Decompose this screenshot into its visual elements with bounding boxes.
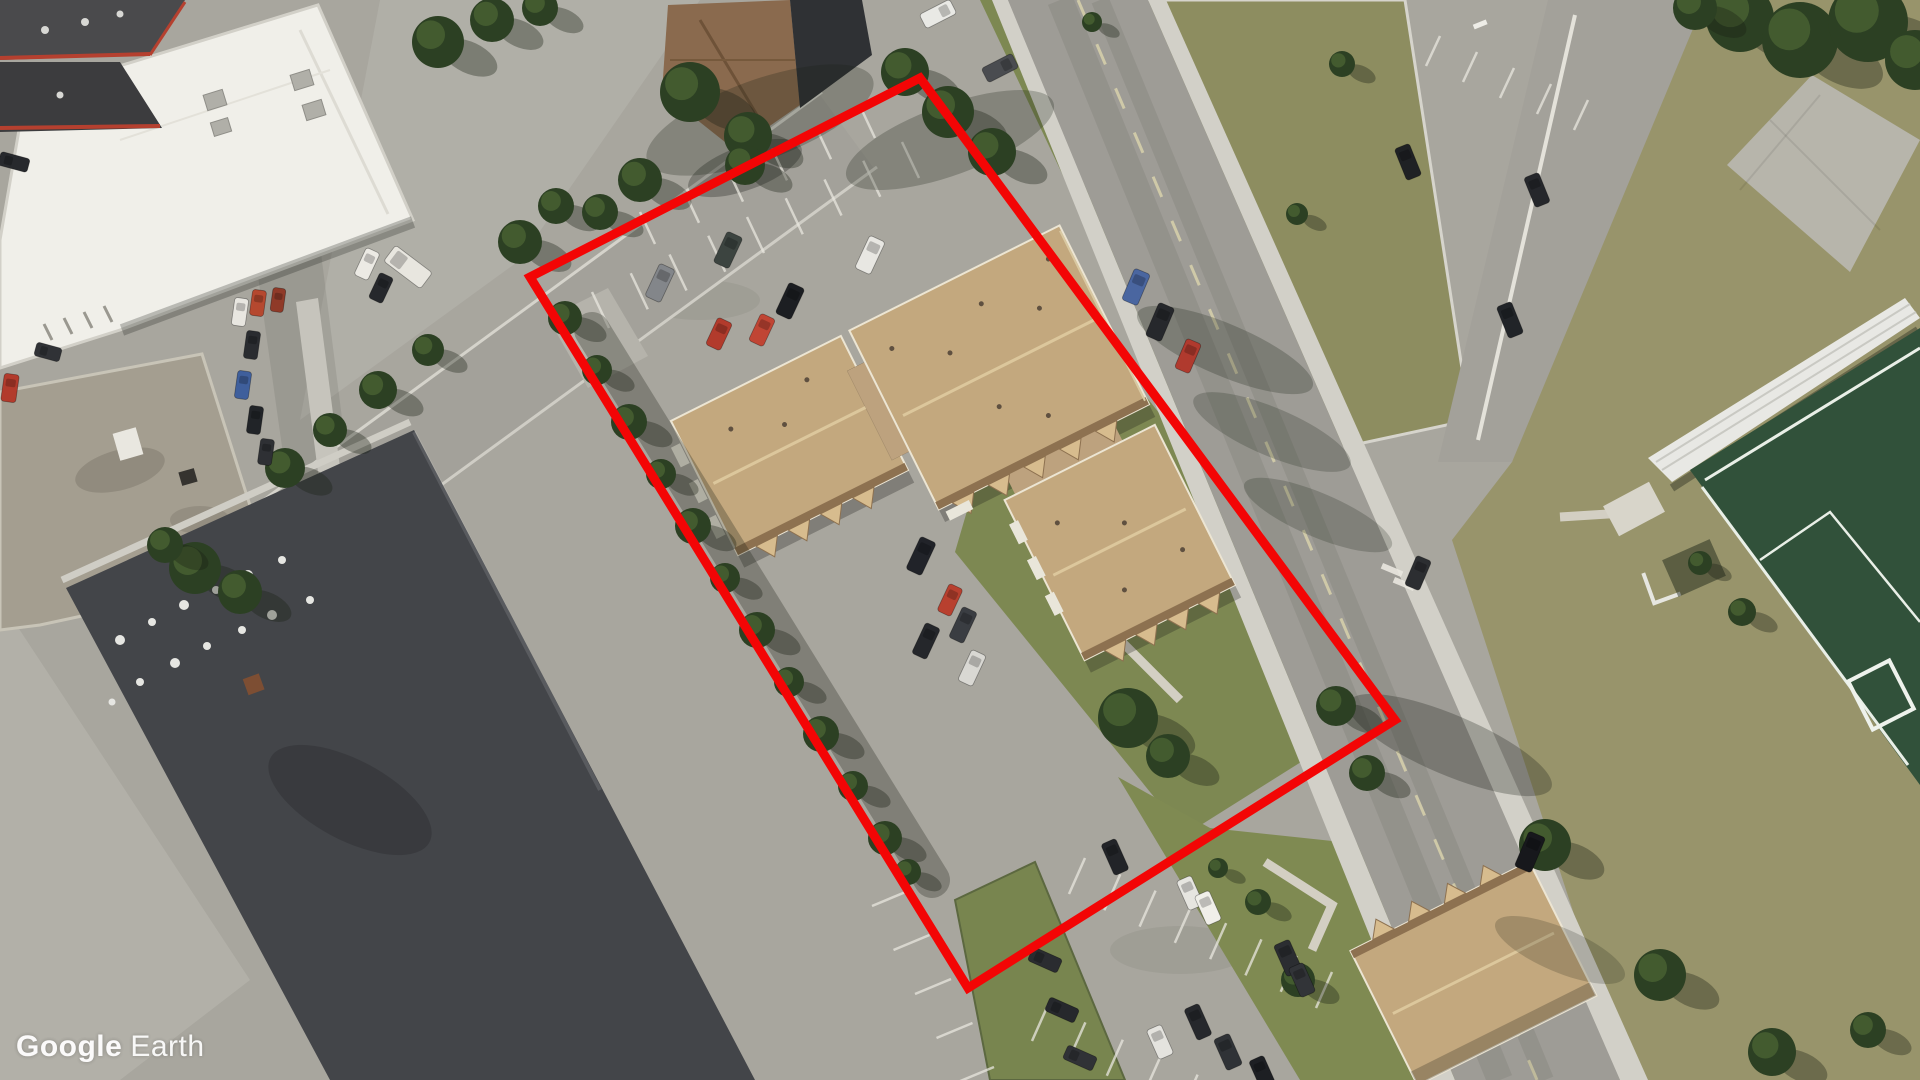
tree-highlight	[1103, 693, 1136, 726]
tree-highlight	[585, 197, 605, 217]
tree-highlight	[1247, 891, 1261, 905]
tree-highlight	[362, 374, 383, 395]
tree-highlight	[1288, 205, 1300, 217]
tree-highlight	[415, 337, 433, 355]
tree-highlight	[1730, 600, 1745, 615]
tree-highlight	[1752, 1032, 1778, 1058]
tree-highlight	[222, 574, 246, 598]
car-windshield	[274, 293, 283, 301]
tree-highlight	[474, 2, 498, 26]
google-earth-watermark: GoogleEarth	[16, 1030, 205, 1064]
tree-highlight	[1084, 14, 1095, 25]
tree-highlight	[1352, 758, 1372, 778]
car-windshield	[262, 443, 272, 451]
tree-highlight	[541, 191, 561, 211]
tree-highlight	[416, 20, 445, 49]
tree-highlight	[1331, 53, 1345, 67]
tree-highlight	[1853, 1015, 1873, 1035]
tree-highlight	[316, 416, 335, 435]
car-windshield	[5, 378, 16, 387]
tree-highlight	[622, 162, 646, 186]
tree-highlight	[1319, 689, 1341, 711]
tree-highlight	[885, 52, 911, 78]
tree-highlight	[1210, 860, 1221, 871]
watermark-earth: Earth	[130, 1030, 204, 1063]
car	[270, 287, 286, 313]
tree-highlight	[1690, 553, 1703, 566]
tree-highlight	[1150, 738, 1174, 762]
car-windshield	[236, 302, 246, 311]
tree-highlight	[1768, 8, 1810, 50]
tree-highlight	[502, 224, 526, 248]
car-windshield	[239, 375, 249, 384]
car-windshield	[251, 410, 261, 419]
car-windshield	[248, 335, 258, 344]
satellite-map-canvas[interactable]: GoogleEarth	[0, 0, 1920, 1080]
tree-highlight	[150, 530, 170, 550]
tree-highlight	[728, 116, 754, 142]
car-windshield	[254, 294, 264, 302]
tree-highlight	[1638, 953, 1667, 982]
tree-highlight	[665, 67, 698, 100]
watermark-google: Google	[16, 1030, 122, 1063]
